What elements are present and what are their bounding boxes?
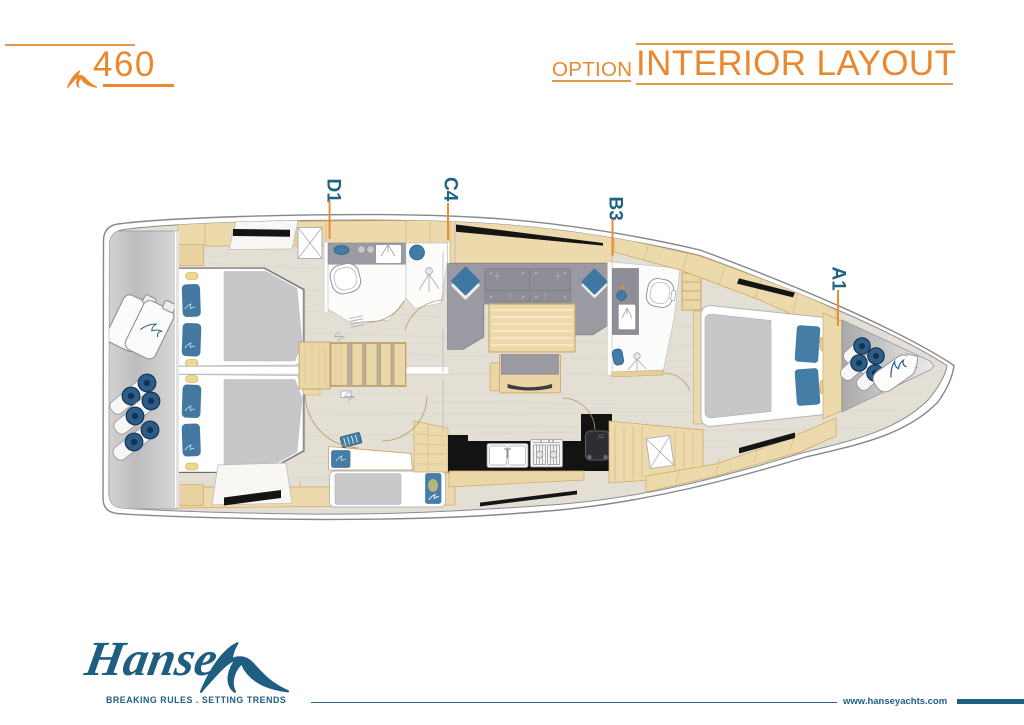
svg-text:D1: D1 [323,179,344,204]
svg-text:A1: A1 [828,267,849,292]
svg-text:C4: C4 [440,177,461,202]
svg-text:B3: B3 [605,197,626,221]
